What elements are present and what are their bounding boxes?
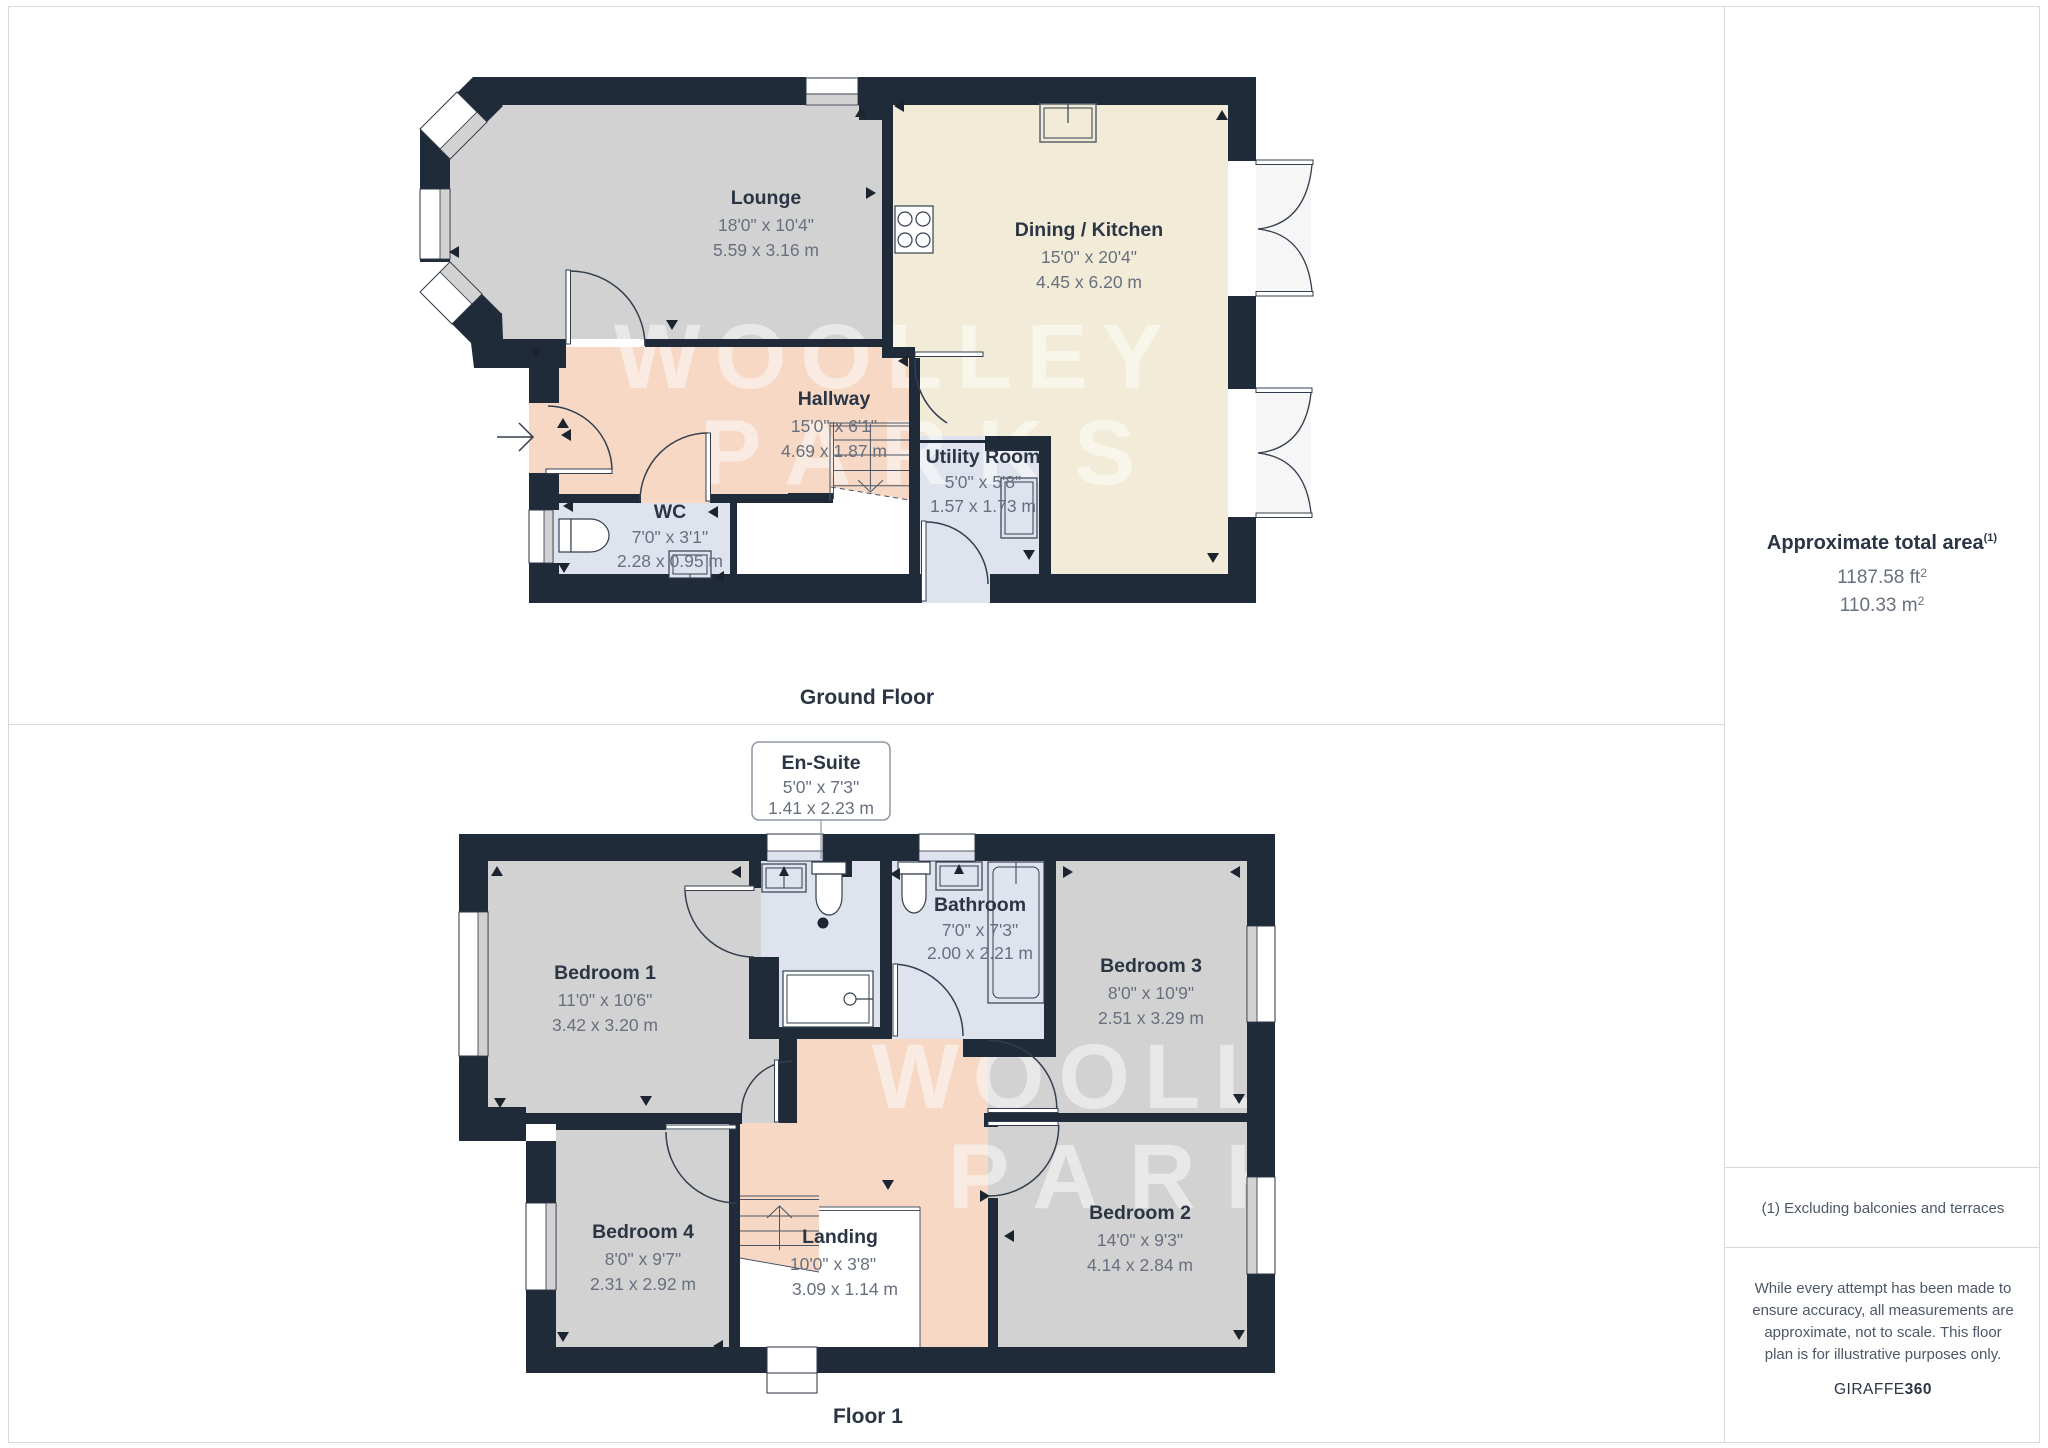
svg-text:Approximate total area(1): Approximate total area(1) <box>1767 532 1998 554</box>
svg-text:15'0" x 6'1": 15'0" x 6'1" <box>791 416 877 436</box>
svg-text:5.59 x 3.16 m: 5.59 x 3.16 m <box>713 240 819 260</box>
svg-text:Bathroom: Bathroom <box>934 894 1026 916</box>
svg-text:3.09 x 1.14 m: 3.09 x 1.14 m <box>792 1279 898 1299</box>
svg-text:Bedroom 2: Bedroom 2 <box>1089 1202 1191 1224</box>
svg-text:Utility Room: Utility Room <box>926 446 1041 468</box>
svg-text:(1) Excluding balconies and te: (1) Excluding balconies and terraces <box>1762 1200 2005 1217</box>
svg-text:15'0" x 20'4": 15'0" x 20'4" <box>1041 247 1137 267</box>
svg-text:3.42 x 3.20 m: 3.42 x 3.20 m <box>552 1015 658 1035</box>
svg-text:1.41 x 2.23 m: 1.41 x 2.23 m <box>768 798 874 818</box>
svg-text:Bedroom 4: Bedroom 4 <box>592 1221 694 1243</box>
svg-text:approximate, not to scale. Thi: approximate, not to scale. This floor <box>1764 1324 2001 1341</box>
svg-text:11'0" x 10'6": 11'0" x 10'6" <box>558 990 653 1010</box>
svg-text:14'0" x 9'3": 14'0" x 9'3" <box>1097 1230 1183 1250</box>
svg-text:2.31 x 2.92 m: 2.31 x 2.92 m <box>590 1274 696 1294</box>
svg-text:1.57 x 1.73 m: 1.57 x 1.73 m <box>930 496 1036 516</box>
svg-text:4.69 x 1.87 m: 4.69 x 1.87 m <box>781 441 887 461</box>
svg-text:Floor 1: Floor 1 <box>833 1405 903 1428</box>
svg-text:En-Suite: En-Suite <box>781 752 860 774</box>
svg-text:10'0" x 3'8": 10'0" x 3'8" <box>790 1254 876 1274</box>
svg-text:WOOLLEY: WOOLLEY <box>872 1026 1435 1128</box>
svg-text:plan is for illustrative purpo: plan is for illustrative purposes only. <box>1765 1346 2002 1363</box>
svg-text:Dining / Kitchen: Dining / Kitchen <box>1015 219 1163 241</box>
svg-text:2.28 x 0.95 m: 2.28 x 0.95 m <box>617 551 723 571</box>
svg-text:110.33 m2: 110.33 m2 <box>1840 594 1925 616</box>
svg-text:5'0" x 5'8": 5'0" x 5'8" <box>945 472 1022 492</box>
svg-text:1187.58 ft2: 1187.58 ft2 <box>1837 566 1927 588</box>
svg-text:Bedroom 3: Bedroom 3 <box>1100 955 1202 977</box>
svg-text:GIRAFFE360: GIRAFFE360 <box>1834 1381 1932 1398</box>
svg-text:18'0" x 10'4": 18'0" x 10'4" <box>718 215 814 235</box>
svg-text:7'0" x 7'3": 7'0" x 7'3" <box>942 920 1019 940</box>
svg-text:8'0" x 9'7": 8'0" x 9'7" <box>605 1249 682 1269</box>
svg-text:Ground Floor: Ground Floor <box>800 686 934 709</box>
svg-text:2.00 x 2.21 m: 2.00 x 2.21 m <box>927 943 1033 963</box>
svg-text:Landing: Landing <box>802 1226 878 1248</box>
svg-text:Hallway: Hallway <box>798 388 871 410</box>
svg-text:While every attempt has been m: While every attempt has been made to <box>1755 1280 2012 1297</box>
svg-text:8'0" x 10'9": 8'0" x 10'9" <box>1108 983 1194 1003</box>
svg-text:4.14 x 2.84 m: 4.14 x 2.84 m <box>1087 1255 1193 1275</box>
svg-text:Lounge: Lounge <box>731 187 802 209</box>
svg-text:ensure accuracy, all measureme: ensure accuracy, all measurements are <box>1752 1302 2014 1319</box>
svg-text:7'0" x 3'1": 7'0" x 3'1" <box>632 527 709 547</box>
svg-text:4.45 x 6.20 m: 4.45 x 6.20 m <box>1036 272 1142 292</box>
svg-text:5'0" x 7'3": 5'0" x 7'3" <box>783 777 860 797</box>
svg-text:2.51 x 3.29 m: 2.51 x 3.29 m <box>1098 1008 1204 1028</box>
svg-text:WC: WC <box>654 501 687 523</box>
svg-text:Bedroom 1: Bedroom 1 <box>554 962 656 984</box>
